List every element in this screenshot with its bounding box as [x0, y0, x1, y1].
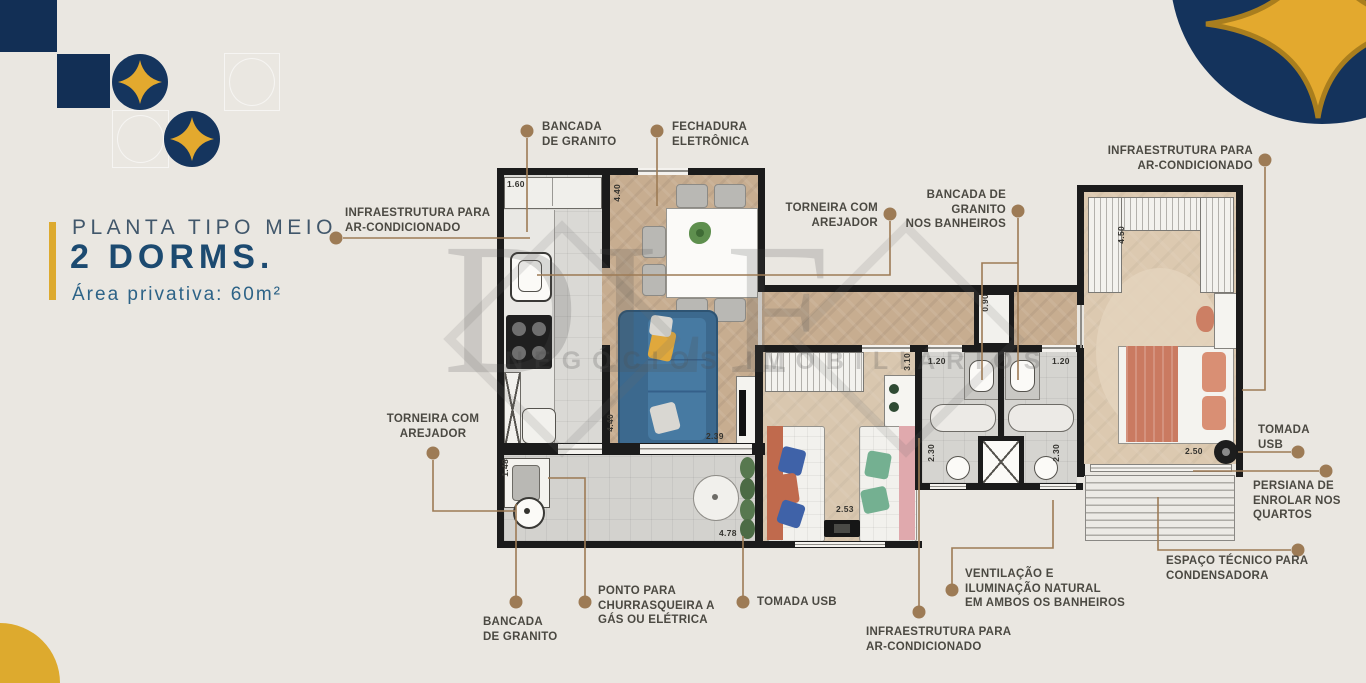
wall-top-kitchen: [497, 168, 765, 175]
laundry-tank-basin: [512, 465, 540, 501]
dim-entry-depth: 4.40: [612, 184, 622, 202]
label-bancada-granito-top: BANCADA DE GRANITO: [542, 120, 617, 149]
kitchen-appliance: [522, 408, 556, 444]
table-plant-leaf: [696, 229, 704, 237]
usb-outlet-center: [1222, 448, 1230, 456]
wall-right: [1236, 185, 1243, 477]
wall-bedroom1-left-upper: [1077, 185, 1084, 305]
label-tomada-usb-bottom: TOMADA USB: [757, 595, 837, 610]
callout-dot: [1320, 465, 1333, 478]
dining-chair: [642, 226, 666, 258]
service-window: [558, 444, 602, 454]
dim-corridor: 3.10: [902, 353, 912, 371]
label-churrasqueira: PONTO PARA CHURRASQUEIRA A GÁS OU ELÉTRI…: [598, 584, 715, 628]
wall-top-bedroom1: [1077, 185, 1243, 192]
callout-dot: [651, 125, 664, 138]
kitchen-sink-basin: [518, 260, 542, 292]
dim-balcony-width: 4.78: [719, 528, 737, 538]
bedroom2-wardrobe: [765, 352, 864, 392]
bedroom1-pillow: [1202, 396, 1226, 430]
bedroom1-door-leaf: [1080, 305, 1082, 348]
condenser-space: [1085, 475, 1235, 541]
decor-navy-square-large: [0, 0, 57, 52]
floorplan-poster: PLANTA TIPO MEIO 2 DORMS. Área privativa…: [0, 0, 1366, 683]
balcony-plant: [740, 478, 755, 500]
bedroom1-blanket: [1126, 346, 1178, 442]
balcony-table-dot: [712, 494, 718, 500]
bedroom1-chair: [1196, 306, 1214, 332]
wall-kitchen-divider-upper: [602, 168, 610, 268]
sofa-pillow-white: [649, 315, 674, 338]
balcony-plant: [740, 499, 755, 521]
label-infra-ac-right: INFRAESTRUTURA PARA AR-CONDICIONADO: [1108, 144, 1253, 173]
bedroom2-door-leaf: [862, 347, 910, 349]
wall-left: [497, 168, 504, 548]
callout-dot: [521, 125, 534, 138]
label-torneira-arejador-left: TORNEIRA COM AREJADOR: [363, 412, 503, 441]
label-infra-ac-bottom: INFRAESTRUTURA PARA AR-CONDICIONADO: [866, 625, 1011, 654]
bed2-pillow-green: [864, 450, 892, 480]
kitchen-counter-divider: [552, 178, 553, 206]
dim-bedroom1-depth: 4.50: [1116, 226, 1126, 244]
wall-notch-left: [758, 168, 765, 292]
callout-line-infra-right: [1242, 167, 1265, 390]
label-bancada-granito-bottom: BANCADA DE GRANITO: [483, 615, 558, 644]
dining-table: [666, 208, 758, 298]
bath-right-vent-window: [1040, 484, 1076, 489]
entry-door-leaf: [638, 170, 688, 172]
bath-left-vent-window: [930, 484, 966, 489]
callout-dot: [510, 596, 523, 609]
dim-bath-left: 1.20: [928, 356, 946, 366]
service-shaft: [978, 436, 1024, 488]
decor-outline-square-1: [224, 53, 280, 111]
label-infra-ac-left: INFRAESTRUTURA PARA AR-CONDICIONADO: [345, 206, 490, 235]
bath-right-shower: [1008, 404, 1074, 432]
kitchen-tall-cabinet: [504, 372, 521, 448]
label-tomada-usb-right: TOMADA USB: [1258, 423, 1310, 452]
bedroom1-pillow: [1202, 352, 1226, 392]
title-accent-bar: [49, 222, 56, 300]
wall-bedroom2-left: [755, 345, 763, 548]
dim-bedroom2-width: 2.53: [836, 504, 854, 514]
dim-living-width: 2.39: [706, 431, 724, 441]
wall-bath-middle: [998, 352, 1004, 438]
persiana-stub: [1077, 464, 1085, 476]
wall-notch-bottom: [758, 285, 1083, 292]
callout-dot: [737, 596, 750, 609]
callout-dot: [1259, 154, 1272, 167]
balcony-glass-door: [640, 444, 752, 454]
dim-living-depth: 4.40: [605, 414, 615, 432]
stove-burner: [512, 322, 526, 336]
decor-gold-corner-arc: [0, 623, 60, 683]
bedroom2-window: [795, 542, 885, 547]
balcony-plant: [740, 457, 755, 479]
bedroom1-wardrobe-right: [1200, 197, 1234, 293]
bedroom1-desk: [1214, 293, 1238, 349]
persiana-window: [1090, 464, 1232, 472]
decor-navy-square-small: [57, 54, 110, 108]
callout-dot: [884, 208, 897, 221]
balcony-plant: [740, 519, 755, 539]
bath-right-door-leaf: [1042, 347, 1076, 349]
wall-bedroom1-left-lower: [1077, 348, 1084, 477]
cabinet-knob: [889, 384, 899, 394]
label-bancada-banheiros: BANCADA DE GRANITO NOS BANHEIROS: [906, 188, 1006, 232]
callout-dot: [913, 606, 926, 619]
decor-outline-square-2: [112, 110, 169, 168]
callout-dot: [946, 584, 959, 597]
dim-bath-right-depth: 2.30: [1051, 444, 1061, 462]
stove-burner: [512, 346, 526, 360]
dining-chair: [642, 264, 666, 296]
callout-dot: [427, 447, 440, 460]
dining-chair: [714, 298, 746, 322]
title-headline: 2 DORMS.: [70, 238, 274, 277]
callout-dot: [579, 596, 592, 609]
stove-burner: [532, 346, 546, 360]
dim-bath-right: 1.20: [1052, 356, 1070, 366]
wall-kitchen-divider-lower: [602, 345, 610, 455]
dim-bath-left-depth: 2.30: [926, 444, 936, 462]
title-area: Área privativa: 60m²: [72, 284, 282, 306]
stove: [506, 315, 552, 369]
bath-left-shower: [930, 404, 996, 432]
bedroom2-tv-screen: [834, 524, 850, 533]
dining-chair: [676, 184, 708, 208]
title-eyebrow: PLANTA TIPO MEIO: [72, 216, 337, 240]
washer-dot: [524, 508, 530, 514]
label-torneira-arejador-top: TORNEIRA COM AREJADOR: [786, 201, 878, 230]
cabinet-knob: [889, 402, 899, 412]
tv: [739, 390, 746, 436]
dim-bedroom1-width: 2.50: [1185, 446, 1203, 456]
corridor-floor: [762, 292, 1077, 345]
dim-kitchen-counter: 1.60: [507, 179, 525, 189]
dining-chair: [714, 184, 746, 208]
stove-burner: [532, 322, 546, 336]
bath-right-sink: [1010, 360, 1035, 392]
label-fechadura-eletronica: FECHADURA ELETRÔNICA: [672, 120, 749, 149]
bed2-right-blanket: [899, 426, 915, 540]
label-ventilacao: VENTILAÇÃO E ILUMINAÇÃO NATURAL EM AMBOS…: [965, 567, 1125, 611]
bath-left-sink: [969, 360, 994, 392]
callout-dot: [1012, 205, 1025, 218]
dim-duct: 0.90: [980, 294, 990, 312]
bath-left-door-leaf: [928, 347, 962, 349]
dim-service-width: 1.48: [500, 459, 510, 477]
bedroom1-wardrobe-left: [1088, 197, 1122, 293]
wall-bedroom2-bath-divider: [915, 345, 922, 490]
bath-left-toilet: [946, 456, 970, 480]
label-espaco-tecnico: ESPAÇO TÉCNICO PARA CONDENSADORA: [1166, 554, 1308, 583]
label-persiana: PERSIANA DE ENROLAR NOS QUARTOS: [1253, 479, 1341, 523]
